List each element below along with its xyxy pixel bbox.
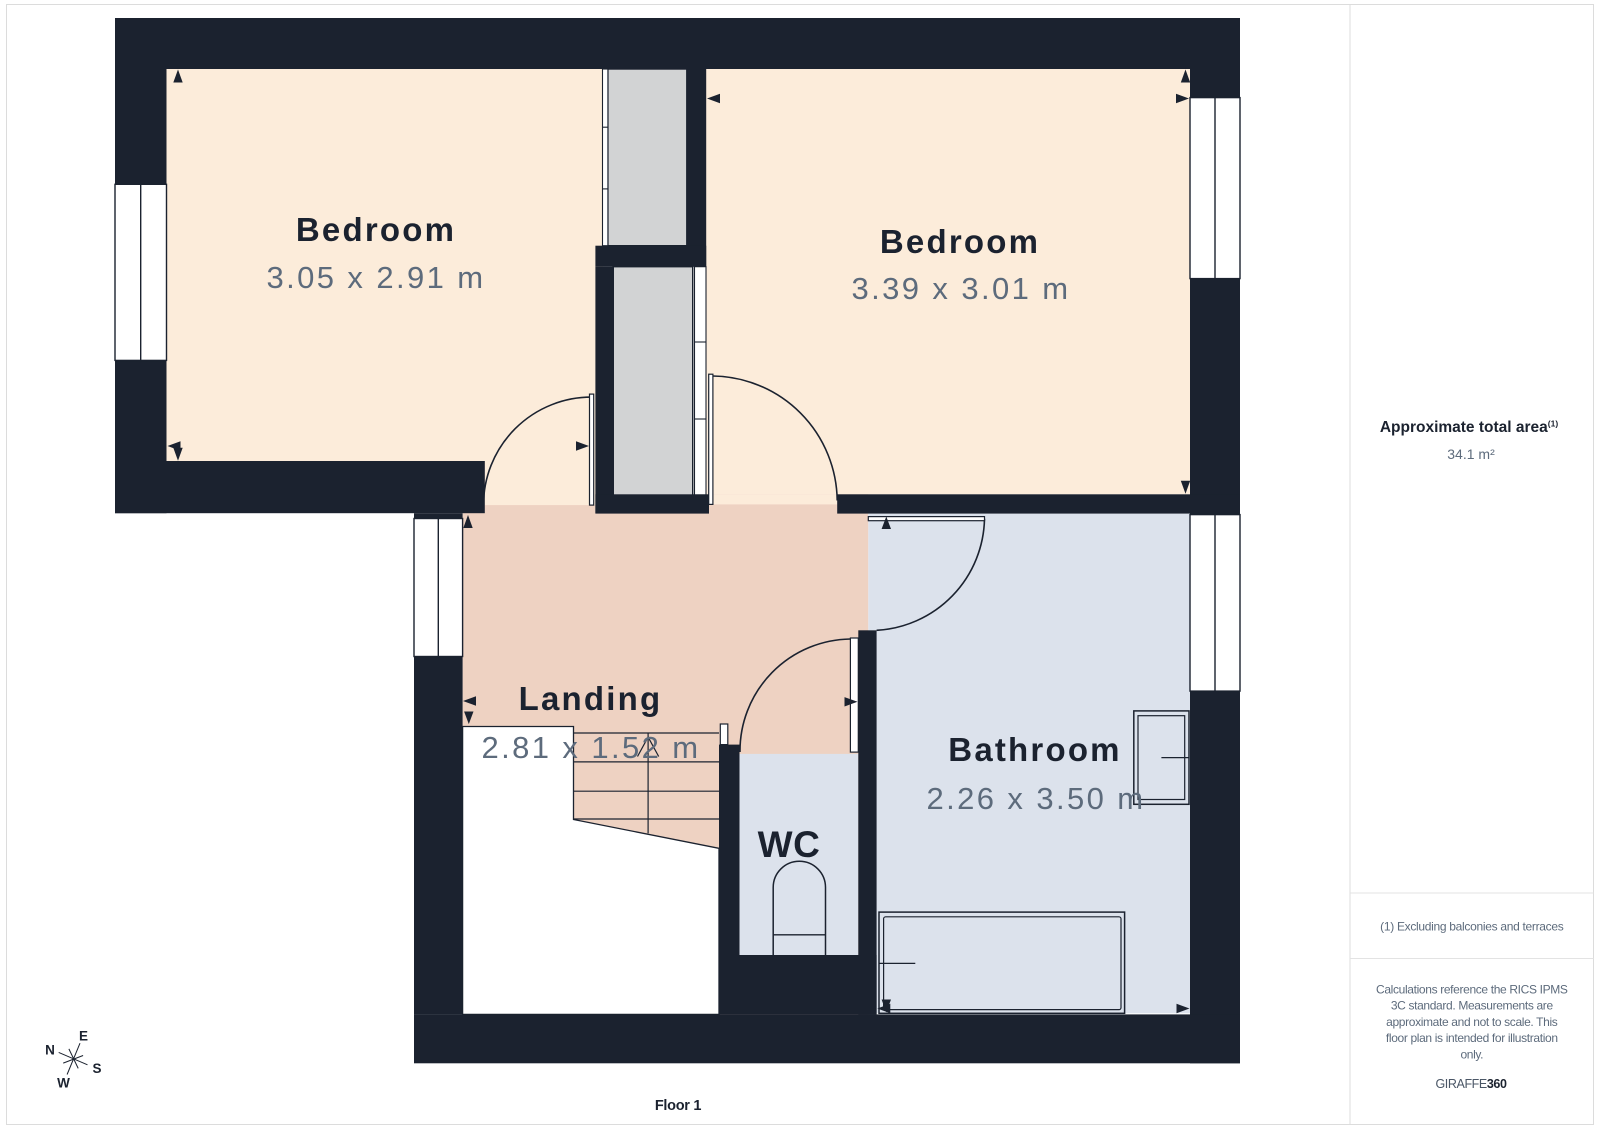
svg-text:Bedroom: Bedroom <box>880 223 1040 260</box>
svg-text:2.26 x 3.50 m: 2.26 x 3.50 m <box>926 781 1145 816</box>
svg-text:GIRAFFE360: GIRAFFE360 <box>1435 1077 1506 1091</box>
svg-text:Approximate total area(1): Approximate total area(1) <box>1380 419 1559 437</box>
svg-text:WC: WC <box>758 824 821 865</box>
svg-text:Landing: Landing <box>519 680 663 717</box>
svg-text:3C standard. Measurements are: 3C standard. Measurements are <box>1391 999 1554 1013</box>
svg-text:floor plan is intended for ill: floor plan is intended for illustration <box>1386 1031 1558 1045</box>
svg-text:Bathroom: Bathroom <box>948 731 1121 768</box>
svg-text:S: S <box>92 1061 101 1076</box>
svg-text:only.: only. <box>1460 1047 1483 1061</box>
svg-text:2.81 x 1.52 m: 2.81 x 1.52 m <box>481 730 700 765</box>
svg-text:Floor 1: Floor 1 <box>655 1098 701 1114</box>
svg-text:E: E <box>79 1029 88 1044</box>
svg-text:34.1 m²: 34.1 m² <box>1447 446 1495 462</box>
svg-text:3.39 x 3.01 m: 3.39 x 3.01 m <box>851 271 1070 306</box>
svg-text:3.05 x 2.91 m: 3.05 x 2.91 m <box>266 260 485 295</box>
svg-text:N: N <box>45 1043 55 1058</box>
svg-text:W: W <box>57 1076 70 1091</box>
svg-text:approximate and not to scale.: approximate and not to scale. This <box>1386 1015 1558 1029</box>
svg-text:(1) Excluding balconies and te: (1) Excluding balconies and terraces <box>1380 920 1564 934</box>
svg-text:Bedroom: Bedroom <box>296 211 456 248</box>
svg-text:Calculations reference the RIC: Calculations reference the RICS IPMS <box>1376 983 1568 997</box>
